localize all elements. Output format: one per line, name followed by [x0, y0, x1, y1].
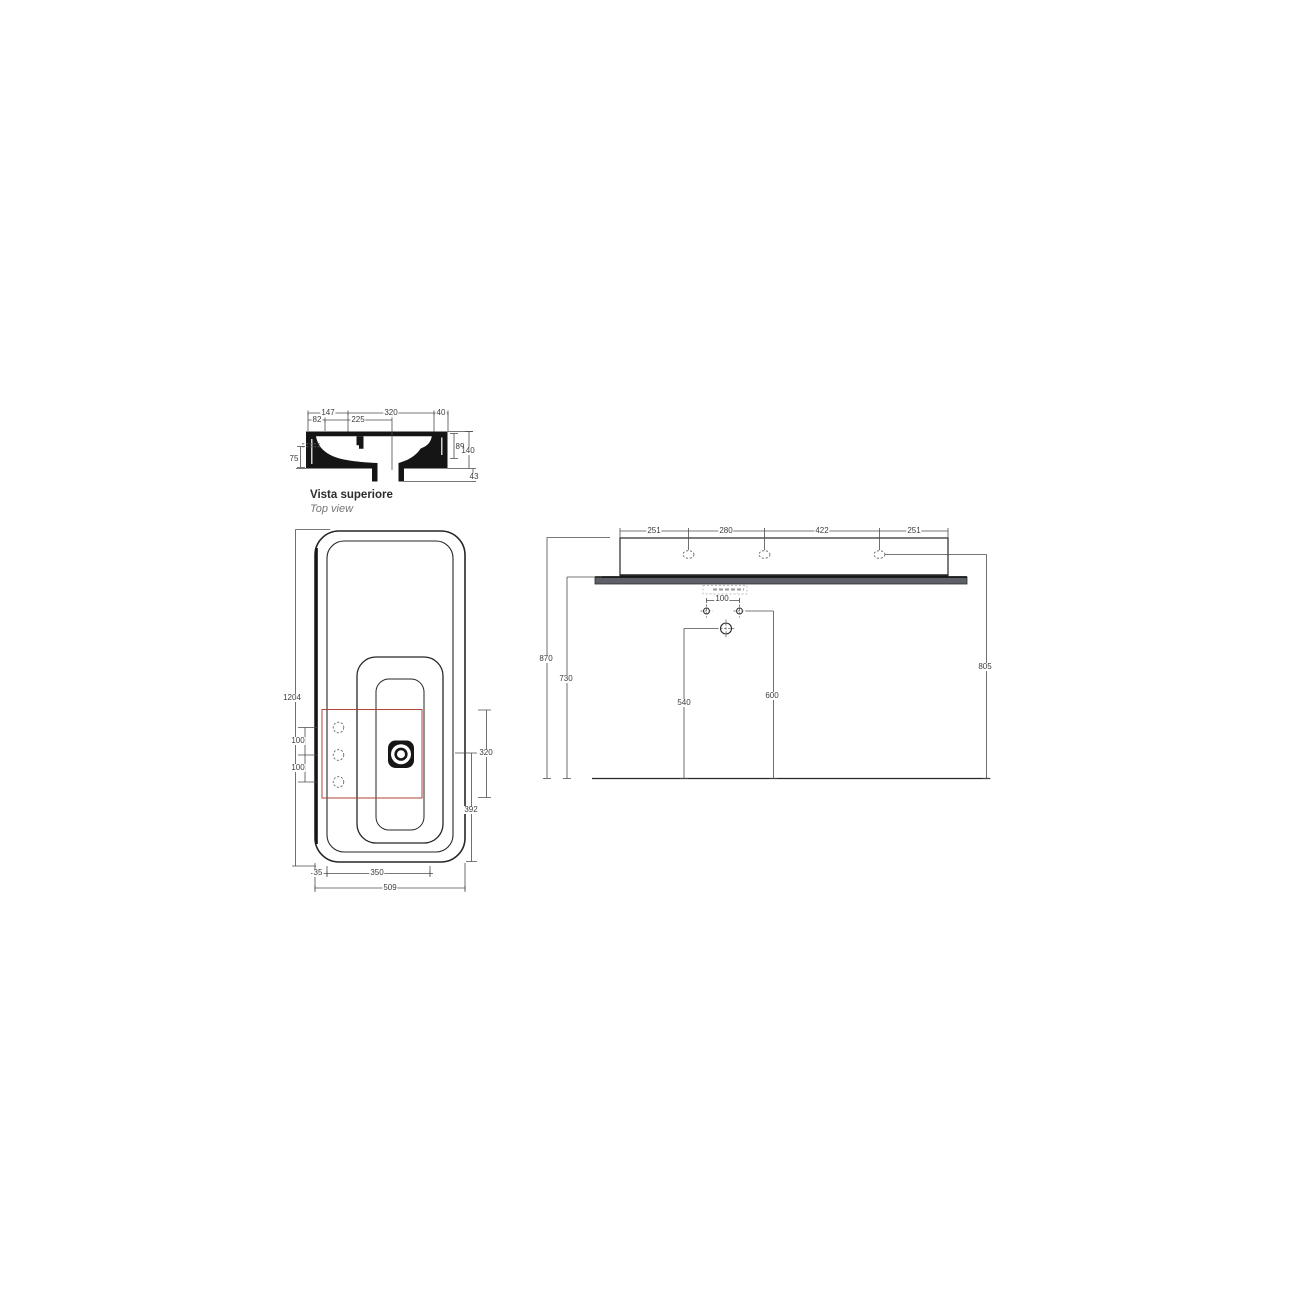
dim-plan-320: 320	[478, 749, 493, 757]
technical-drawing-sheet: Vista superiore Top view 147 320 40 82 2…	[0, 0, 1300, 1300]
dim-front-540: 540	[676, 699, 691, 707]
dim-plan-100-upper: 100	[290, 737, 305, 745]
dim-section-225: 225	[350, 416, 365, 424]
view-title-italian: Vista superiore	[310, 489, 393, 502]
dim-section-75: 75	[289, 455, 300, 463]
illegible-stamp	[703, 586, 747, 595]
faucet-holes	[333, 722, 344, 787]
wall-shelf	[595, 577, 967, 584]
dim-plan-350: 350	[369, 869, 384, 877]
basin-rim	[327, 541, 453, 852]
dim-front-100: 100	[714, 595, 729, 603]
faucet-holes-front	[683, 538, 885, 558]
dim-front-805: 805	[977, 663, 992, 671]
dim-front-251-right: 251	[906, 527, 921, 535]
drawing-linework	[0, 0, 1300, 1300]
dim-plan-509: 509	[382, 884, 397, 892]
drain-symbol	[388, 741, 414, 769]
front-view	[543, 528, 991, 779]
wall-edge-bar	[315, 548, 318, 844]
basin-cross-section	[306, 432, 448, 482]
dim-plan-35: 35	[313, 869, 324, 877]
dim-section-147: 147	[320, 409, 335, 417]
dim-section-43: 43	[469, 473, 480, 481]
plan-view	[292, 530, 491, 893]
dim-section-320: 320	[383, 409, 398, 417]
section-view	[296, 411, 476, 482]
dim-front-870: 870	[538, 655, 553, 663]
dim-plan-1204: 1204	[282, 694, 302, 702]
mounting-hole-crosshairs	[701, 605, 746, 618]
dim-section-40: 40	[436, 409, 447, 417]
dim-section-82: 82	[312, 416, 323, 424]
dim-front-422: 422	[814, 527, 829, 535]
view-title-english: Top view	[310, 503, 353, 516]
dim-section-140: 140	[460, 447, 475, 455]
dim-front-251-left: 251	[646, 527, 661, 535]
dim-front-730: 730	[558, 675, 573, 683]
dim-front-280: 280	[718, 527, 733, 535]
dim-plan-100-lower: 100	[290, 764, 305, 772]
dim-plan-392: 392	[463, 806, 478, 814]
drain-crosshair	[717, 620, 736, 638]
basin-front	[620, 538, 948, 576]
dim-front-600: 600	[764, 692, 779, 700]
